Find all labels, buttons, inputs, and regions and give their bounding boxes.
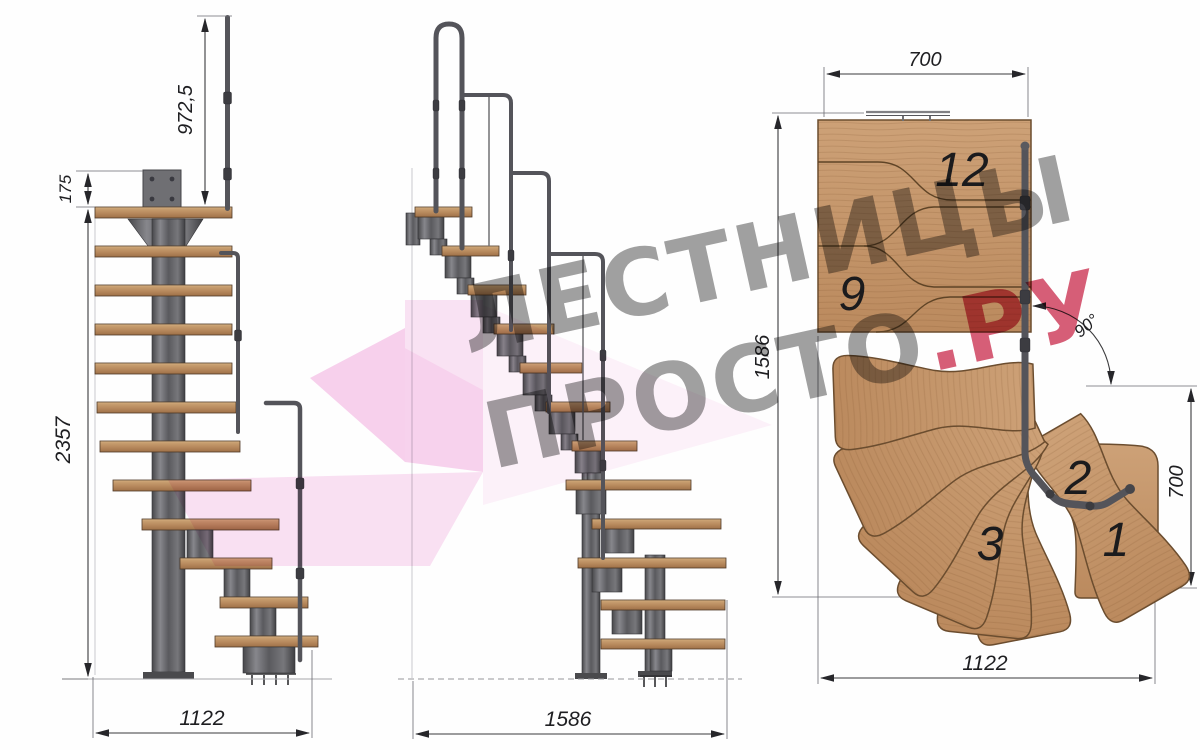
column-base-plate bbox=[143, 672, 194, 679]
dim-front-width: 1122 bbox=[179, 707, 224, 730]
wall-bracket bbox=[143, 170, 181, 208]
side-column-a-base bbox=[575, 673, 607, 679]
dim-plan-top-width: 700 bbox=[908, 49, 941, 71]
dim-total-height: 2357 bbox=[52, 415, 75, 464]
dim-top-offset: 175 bbox=[56, 174, 75, 203]
step-label-2: 2 bbox=[1064, 452, 1092, 505]
side-floor-anchors bbox=[640, 676, 672, 687]
dim-handrail-height: 972,5 bbox=[175, 84, 197, 135]
handrail-post bbox=[225, 15, 230, 211]
dim-plan-right-depth: 700 bbox=[1166, 465, 1188, 498]
step-label-3: 3 bbox=[977, 518, 1004, 571]
front-view: 175 2357 972,5 1122 bbox=[52, 15, 332, 738]
staircase-drawing: 175 2357 972,5 1122 bbox=[0, 0, 1200, 750]
dim-plan-bottom-width: 1122 bbox=[962, 652, 1007, 675]
front-treads bbox=[95, 207, 318, 673]
side-dimensions: 1586 bbox=[413, 600, 727, 739]
dim-side-width: 1586 bbox=[545, 708, 592, 731]
step-label-1: 1 bbox=[1103, 514, 1130, 567]
